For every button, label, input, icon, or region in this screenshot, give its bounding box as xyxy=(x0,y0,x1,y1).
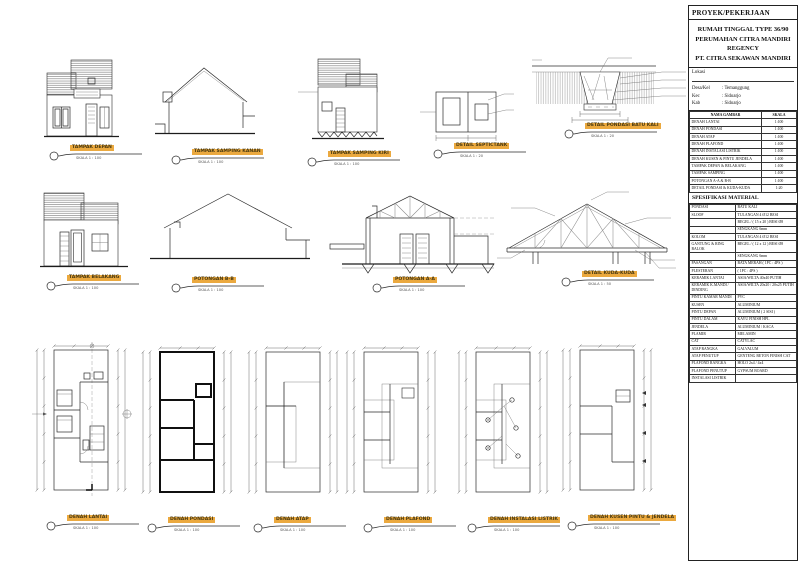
spec-label xyxy=(690,226,736,233)
drawing-title-text: DETAIL KUDA-KUDA xyxy=(582,271,637,277)
spec-label: PLESTERAN xyxy=(690,267,736,274)
side-elevation-right-drawing xyxy=(155,60,255,140)
project-title: RUMAH TINGGAL TYPE 36/90 PERUMAHAN CITRA… xyxy=(689,20,797,68)
project-title-line: RUMAH TINGGAL TYPE 36/90 xyxy=(698,26,789,33)
spec-value: BATU KALI xyxy=(736,204,797,211)
floor-plan-drawing xyxy=(30,342,134,510)
drawing-scale-text: SKALA 1 : 100 xyxy=(73,526,98,530)
spec-value: ALUMINIUM ( 2 SISI ) xyxy=(736,309,797,316)
electrical-plan-drawing xyxy=(452,344,556,512)
spec-label: CAT xyxy=(690,338,736,345)
spec-value: ALUMINIUM / KACA xyxy=(736,324,797,331)
drawing-title-side-right: TAMPAK SAMPING KANAN SKALA 1 : 100 xyxy=(170,148,266,168)
spec-label: PONDASI xyxy=(690,204,736,211)
drawing-title-text: TAMPAK DEPAN xyxy=(70,145,114,151)
drawing-list-name: TAMPAK SAMPING xyxy=(690,170,762,177)
spec-row: PASANGANBATA MERAH ( 1PC : 4PS ) xyxy=(690,260,797,267)
spec-label: PLAFOND PENUTUP xyxy=(690,367,736,374)
drawing-list-table: NAMA GAMBAR SKALA DENAH LANTAI1:100DENAH… xyxy=(689,111,797,193)
drawing-scale-text: SKALA 1 : 100 xyxy=(174,528,199,532)
spec-row: GANTUNG & RING BALOKBEGEL / ( 12 x 12 ) … xyxy=(690,241,797,253)
ceiling-plan-drawing xyxy=(340,344,444,512)
spec-row: INSTALASI LISTRIK xyxy=(690,375,797,382)
project-title-line: PT. CITRA SEKAWAN MANDIRI xyxy=(695,55,790,62)
spec-value: KAYU FINISH HPL xyxy=(736,316,797,323)
roof-plan-drawing xyxy=(242,344,346,512)
section-bb-drawing xyxy=(150,188,310,268)
spec-value: GENTENG BETON FINISH CAT xyxy=(736,353,797,360)
drawing-list-row: DENAH LANTAI1:100 xyxy=(690,119,797,126)
drawing-scale-text: SKALA 1 : 100 xyxy=(280,528,305,532)
location-field: Kec : Sidoarjo xyxy=(692,93,794,100)
spec-value: SENGKANG 6mm xyxy=(736,253,797,260)
drawing-title-electrical-plan: DENAH INSTALASI LISTRIK SKALA 1 : 100 xyxy=(466,516,562,536)
drawing-list-scale: 1:100 xyxy=(762,126,797,133)
drawing-list-scale: 1:20 xyxy=(762,185,797,192)
spec-label: KOLOM xyxy=(690,233,736,240)
spec-row: PLAFOND RANGKAHOLO 2x4 / 4x4 xyxy=(690,360,797,367)
spec-row: CATCATYLAC xyxy=(690,338,797,345)
spec-value: ALUMINIUM xyxy=(736,302,797,309)
drawing-title-text: DENAH KUSEN PINTU & JENDELA xyxy=(588,515,676,521)
drawing-list-scale: 1:100 xyxy=(762,170,797,177)
spec-label: KERAMIK LANTAI xyxy=(690,275,736,282)
spec-row: PLAMIRMELAMIN xyxy=(690,331,797,338)
spec-row: KERAMIK LANTAIASIA/WILTA 40x40 PUTIH xyxy=(690,275,797,282)
septictank-detail-drawing xyxy=(420,88,515,146)
drawing-sheet: TAMPAK DEPAN SKALA 1 : 100 TAMPAK SAMPIN… xyxy=(0,0,804,567)
side-elevation-left-drawing xyxy=(298,56,388,148)
drawing-title-text: DETAIL PONDASI BATU KALI xyxy=(585,123,661,129)
location-field-label: Desa/Kel xyxy=(692,85,722,92)
drawing-title-text: TAMPAK SAMPING KANAN xyxy=(192,149,263,155)
spec-row: BEGEL / ( 15 x 20 ) BESI Ø8 xyxy=(690,219,797,226)
drawing-list-row: DENAH PLAFOND1:100 xyxy=(690,141,797,148)
drawing-title-floor-plan: DENAH LANTAI SKALA 1 : 100 xyxy=(45,514,141,534)
drawing-title-text: DENAH ATAP xyxy=(274,517,311,523)
drawing-title-ceiling-plan: DENAH PLAFOND SKALA 1 : 100 xyxy=(362,516,458,536)
spec-value: BEGEL / ( 12 x 12 ) BESI Ø8 xyxy=(736,241,797,253)
spec-row: SLOOFTULANGAN 4 Ø12 BESI xyxy=(690,211,797,218)
drawing-list-row: DENAH PONDASI1:100 xyxy=(690,126,797,133)
spec-label: GANTUNG & RING BALOK xyxy=(690,241,736,253)
drawing-title-front-elevation: TAMPAK DEPAN SKALA 1 : 100 xyxy=(48,144,144,164)
drawing-list-row: POTONGAN A-A & B-B1:100 xyxy=(690,177,797,184)
spec-value: PVC xyxy=(736,294,797,301)
drawing-title-side-left: TAMPAK SAMPING KIRI SKALA 1 : 100 xyxy=(306,150,402,170)
spec-value: MELAMIN xyxy=(736,331,797,338)
drawing-scale-text: SKALA 1 : 100 xyxy=(198,288,223,292)
spec-label: PINTU DALAM xyxy=(690,316,736,323)
location-field-value: : Temanggung xyxy=(722,85,749,92)
drawing-scale-text: SKALA 1 : 100 xyxy=(594,526,619,530)
spec-row: KUSENALUMINIUM xyxy=(690,302,797,309)
drawing-title-text: DENAH PONDASI xyxy=(168,517,215,523)
drawing-list-name: TAMPAK DEPAN & BELAKANG xyxy=(690,163,762,170)
drawing-title-kusen-plan: DENAH KUSEN PINTU & JENDELA SKALA 1 : 10… xyxy=(566,514,662,534)
drawing-title-text: DENAH PLAFOND xyxy=(384,517,432,523)
drawing-list-row: TAMPAK DEPAN & BELAKANG1:100 xyxy=(690,163,797,170)
spec-value xyxy=(736,375,797,382)
spec-value: SENGKANG 6mm xyxy=(736,226,797,233)
drawing-list-name: DENAH PLAFOND xyxy=(690,141,762,148)
drawing-title-text: TAMPAK BELAKANG xyxy=(67,275,121,281)
spec-row: ATAP PENUTUPGENTENG BETON FINISH CAT xyxy=(690,353,797,360)
drawing-list-scale: 1:100 xyxy=(762,133,797,140)
location-field: Desa/Kel : Temanggung xyxy=(692,85,794,92)
drawing-title-section-bb: POTONGAN B-B SKALA 1 : 100 xyxy=(170,276,266,296)
title-block-header: PROYEK/PEKERJAAN xyxy=(689,6,797,20)
drawing-scale-text: SKALA 1 : 100 xyxy=(399,288,424,292)
spec-value: GYPSUM BOARD xyxy=(736,367,797,374)
spec-table: PONDASIBATU KALISLOOFTULANGAN 4 Ø12 BESI… xyxy=(689,204,797,383)
spec-value: BATA MERAH ( 1PC : 4PS ) xyxy=(736,260,797,267)
spec-section-title: SPESIFIKASI MATERIAL xyxy=(689,193,797,204)
roof-truss-detail-drawing xyxy=(495,188,680,274)
location-label: Lokasi xyxy=(692,70,794,82)
spec-value: ( 1PC : 4PS ) xyxy=(736,267,797,274)
spec-value: ASIA/WILTA 40x40 PUTIH xyxy=(736,275,797,282)
spec-row: SENGKANG 6mm xyxy=(690,253,797,260)
spec-row: PINTU DALAMKAYU FINISH HPL xyxy=(690,316,797,323)
project-title-line: REGENCY xyxy=(727,45,759,52)
spec-row: KOLOMTULANGAN 4 Ø12 BESI xyxy=(690,233,797,240)
drawing-list-name: DENAH INSTALASI LISTRIK xyxy=(690,148,762,155)
drawing-list-row: TAMPAK SAMPING1:100 xyxy=(690,170,797,177)
spec-label: PINTU DEPAN xyxy=(690,309,736,316)
spec-row: PONDASIBATU KALI xyxy=(690,204,797,211)
drawing-list-name: DENAH PONDASI xyxy=(690,126,762,133)
spec-value: GALVALUM xyxy=(736,345,797,352)
spec-value: HOLO 2x4 / 4x4 xyxy=(736,360,797,367)
drawing-list-name: DETAIL PONDASI & KUDA-KUDA xyxy=(690,185,762,192)
drawing-title-section-aa: POTONGAN A-A SKALA 1 : 100 xyxy=(371,276,467,296)
drawing-title-text: DETAIL SEPTICTANK xyxy=(454,143,509,149)
drawing-title-foundation-plan: DENAH PONDASI SKALA 1 : 100 xyxy=(146,516,242,536)
drawing-title-text: DENAH LANTAI xyxy=(67,515,109,521)
spec-row: SENGKANG 6mm xyxy=(690,226,797,233)
location-field: Kab : Sidoarjo xyxy=(692,100,794,107)
drawing-title-rear-elevation: TAMPAK BELAKANG SKALA 1 : 100 xyxy=(45,274,141,294)
drawing-title-text: POTONGAN B-B xyxy=(192,277,236,283)
spec-row: JENDELAALUMINIUM / KACA xyxy=(690,324,797,331)
spec-label: PLAFOND RANGKA xyxy=(690,360,736,367)
drawing-list-scale: 1:100 xyxy=(762,177,797,184)
spec-value: TULANGAN 4 Ø12 BESI xyxy=(736,211,797,218)
spec-row: PLAFOND PENUTUPGYPSUM BOARD xyxy=(690,367,797,374)
spec-row: PLESTERAN( 1PC : 4PS ) xyxy=(690,267,797,274)
drawing-title-text: TAMPAK SAMPING KIRI xyxy=(328,151,391,157)
drawing-scale-text: SKALA 1 : 20 xyxy=(460,154,483,158)
location-field-value: : Sidoarjo xyxy=(722,100,741,107)
front-elevation-drawing xyxy=(44,58,119,146)
spec-label: SLOOF xyxy=(690,211,736,218)
drawing-title-text: DENAH INSTALASI LISTRIK xyxy=(488,517,560,523)
drawing-list-name: POTONGAN A-A & B-B xyxy=(690,177,762,184)
drawing-list-scale: 1:100 xyxy=(762,148,797,155)
section-aa-drawing xyxy=(326,184,496,276)
title-block: PROYEK/PEKERJAAN RUMAH TINGGAL TYPE 36/9… xyxy=(688,5,798,561)
spec-row: PINTU KAMAR MANDIPVC xyxy=(690,294,797,301)
drawing-list-row: DENAH ATAP1:100 xyxy=(690,133,797,140)
spec-label: KERAMIK K.MANDI / DINDING xyxy=(690,282,736,294)
drawing-list-scale: 1:100 xyxy=(762,141,797,148)
location-field-label: Kab xyxy=(692,100,722,107)
drawing-list-row: DENAH KUSEN & PINTU JENDELA1:100 xyxy=(690,155,797,162)
drawing-scale-text: SKALA 1 : 100 xyxy=(390,528,415,532)
drawing-list-name: DENAH ATAP xyxy=(690,133,762,140)
spec-label: ATAP PENUTUP xyxy=(690,353,736,360)
spec-label: KUSEN xyxy=(690,302,736,309)
drawing-list-name: DENAH KUSEN & PINTU JENDELA xyxy=(690,155,762,162)
project-title-line: PERUMAHAN CITRA MANDIRI xyxy=(695,36,790,43)
drawing-scale-text: SKALA 1 : 50 xyxy=(588,282,611,286)
drawing-list-scale: 1:100 xyxy=(762,163,797,170)
drawing-list-header-name: NAMA GAMBAR xyxy=(690,112,762,119)
spec-value: BEGEL / ( 15 x 20 ) BESI Ø8 xyxy=(736,219,797,226)
spec-label: JENDELA xyxy=(690,324,736,331)
drawing-title-roof-plan: DENAH ATAP SKALA 1 : 100 xyxy=(252,516,348,536)
spec-label: PASANGAN xyxy=(690,260,736,267)
foundation-plan-drawing xyxy=(136,344,240,512)
location-section: Lokasi Desa/Kel : Temanggung Kec : Sidoa… xyxy=(689,68,797,111)
spec-label: INSTALASI LISTRIK xyxy=(690,375,736,382)
drawing-title-foundation-detail: DETAIL PONDASI BATU KALI SKALA 1 : 20 xyxy=(563,122,659,142)
spec-label xyxy=(690,253,736,260)
rear-elevation-drawing xyxy=(40,186,128,278)
drawing-scale-text: SKALA 1 : 100 xyxy=(73,286,98,290)
spec-label: PLAMIR xyxy=(690,331,736,338)
drawing-title-truss-detail: DETAIL KUDA-KUDA SKALA 1 : 50 xyxy=(560,270,656,290)
drawing-title-text: POTONGAN A-A xyxy=(393,277,437,283)
spec-value: CATYLAC xyxy=(736,338,797,345)
foundation-detail-drawing xyxy=(528,50,688,128)
location-field-value: : Sidoarjo xyxy=(722,93,741,100)
drawing-scale-text: SKALA 1 : 20 xyxy=(591,134,614,138)
drawing-list-name: DENAH LANTAI xyxy=(690,119,762,126)
drawing-list-header-scale: SKALA xyxy=(762,112,797,119)
spec-value: TULANGAN 4 Ø12 BESI xyxy=(736,233,797,240)
drawing-list-scale: 1:100 xyxy=(762,155,797,162)
drawing-list-scale: 1:100 xyxy=(762,119,797,126)
drawing-list-header-row: NAMA GAMBAR SKALA xyxy=(690,112,797,119)
spec-row: ATAP RANGKAGALVALUM xyxy=(690,345,797,352)
kusen-plan-drawing xyxy=(556,342,660,510)
spec-row: KERAMIK K.MANDI / DINDINGASIA/WILTA 20x2… xyxy=(690,282,797,294)
spec-label: PINTU KAMAR MANDI xyxy=(690,294,736,301)
drawing-list-row: DENAH INSTALASI LISTRIK1:100 xyxy=(690,148,797,155)
drawing-scale-text: SKALA 1 : 100 xyxy=(494,528,519,532)
spec-value: ASIA/WILTA 20x20 / 20x25 PUTIH xyxy=(736,282,797,294)
drawing-list-row: DETAIL PONDASI & KUDA-KUDA1:20 xyxy=(690,185,797,192)
drawing-scale-text: SKALA 1 : 100 xyxy=(198,160,223,164)
spec-label: ATAP RANGKA xyxy=(690,345,736,352)
spec-label xyxy=(690,219,736,226)
drawing-scale-text: SKALA 1 : 100 xyxy=(334,162,359,166)
drawing-scale-text: SKALA 1 : 100 xyxy=(76,156,101,160)
location-field-label: Kec xyxy=(692,93,722,100)
drawing-title-septictank: DETAIL SEPTICTANK SKALA 1 : 20 xyxy=(432,142,528,162)
spec-row: PINTU DEPANALUMINIUM ( 2 SISI ) xyxy=(690,309,797,316)
